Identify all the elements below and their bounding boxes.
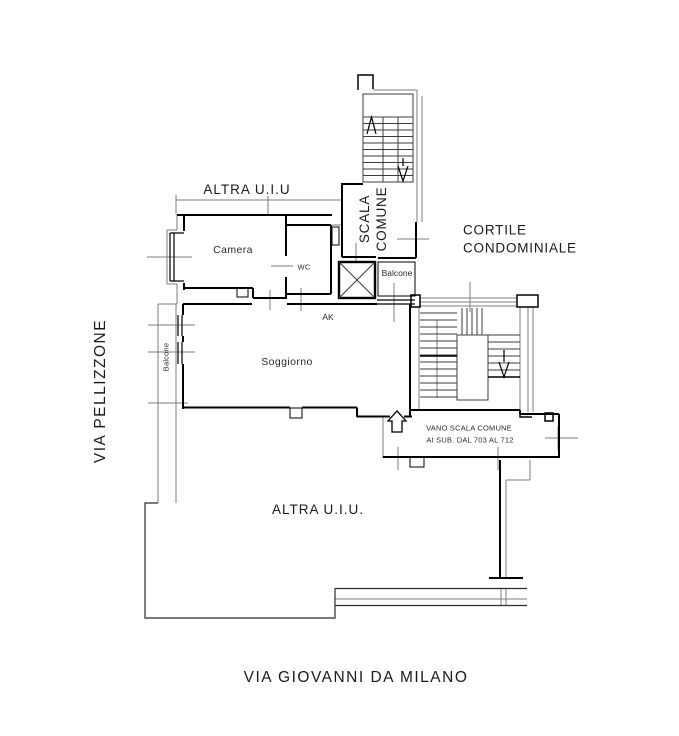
area-label-vano-scala-line2: AI SUB. DAL 703 AL 712	[426, 437, 513, 446]
pillar	[517, 295, 538, 307]
stair-hook	[358, 75, 373, 90]
room-label-balcone-small: Balcone	[382, 269, 413, 279]
cortile-line2: CONDOMINIALE	[463, 239, 577, 257]
area-label-altra-uiu-bottom: ALTRA U.I.U.	[272, 502, 364, 518]
area-label-altra-uiu-top: ALTRA U.I.U	[203, 182, 290, 198]
area-label-scala-comune: SCALA COMUNE	[357, 187, 391, 252]
balcone-small-outline	[378, 262, 415, 296]
room-label-camera: Camera	[213, 244, 253, 256]
room-label-balcone-left: Balcone	[163, 343, 172, 372]
scala-line1: SCALA	[357, 187, 374, 252]
pillar	[411, 295, 420, 307]
scala-line2: COMUNE	[374, 187, 391, 252]
street-label-via-giovanni-da-milano: VIA GIOVANNI DA MILANO	[244, 669, 469, 687]
room-label-wc: WC	[298, 264, 311, 273]
building-outline	[145, 503, 527, 618]
right-stairs	[411, 295, 553, 421]
room-label-soggiorno: Soggiorno	[261, 356, 312, 368]
stair-well	[457, 335, 488, 400]
stair-treads	[363, 117, 413, 176]
elevator-icon	[339, 262, 375, 298]
floorplan-page: ALTRA U.I.U Camera WC SCALA COMUNE Balco…	[0, 0, 679, 736]
entrance-arrow-icon	[388, 411, 406, 432]
area-label-vano-scala-line1: VANO SCALA COMUNE	[426, 425, 512, 434]
stairs-up-arrow-icon	[367, 117, 376, 134]
street-label-via-pellizzone: VIA PELLIZZONE	[92, 319, 110, 463]
area-label-cortile: CORTILE CONDOMINIALE	[463, 221, 577, 256]
cortile-line1: CORTILE	[463, 221, 577, 239]
upper-stairs	[358, 75, 413, 182]
stair-treads-top	[462, 308, 482, 335]
room-label-ak: AK	[322, 313, 333, 323]
stair-treads-left	[420, 313, 457, 397]
